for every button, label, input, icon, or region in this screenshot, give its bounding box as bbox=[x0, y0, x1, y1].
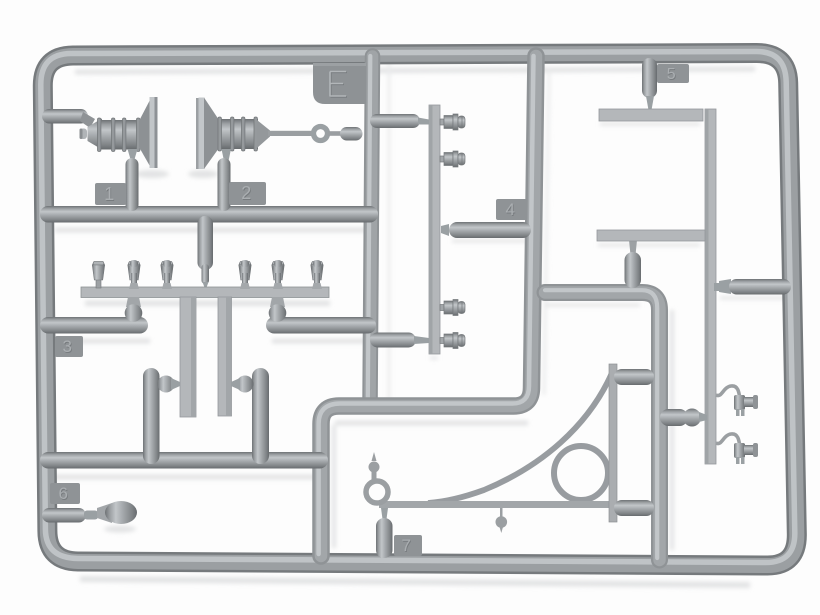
svg-text:3: 3 bbox=[62, 337, 71, 356]
svg-text:4: 4 bbox=[505, 200, 514, 219]
svg-text:1: 1 bbox=[104, 184, 114, 204]
svg-text:6: 6 bbox=[58, 484, 67, 503]
svg-text:7: 7 bbox=[401, 536, 410, 555]
svg-text:5: 5 bbox=[667, 66, 676, 83]
svg-text:2: 2 bbox=[241, 183, 251, 203]
